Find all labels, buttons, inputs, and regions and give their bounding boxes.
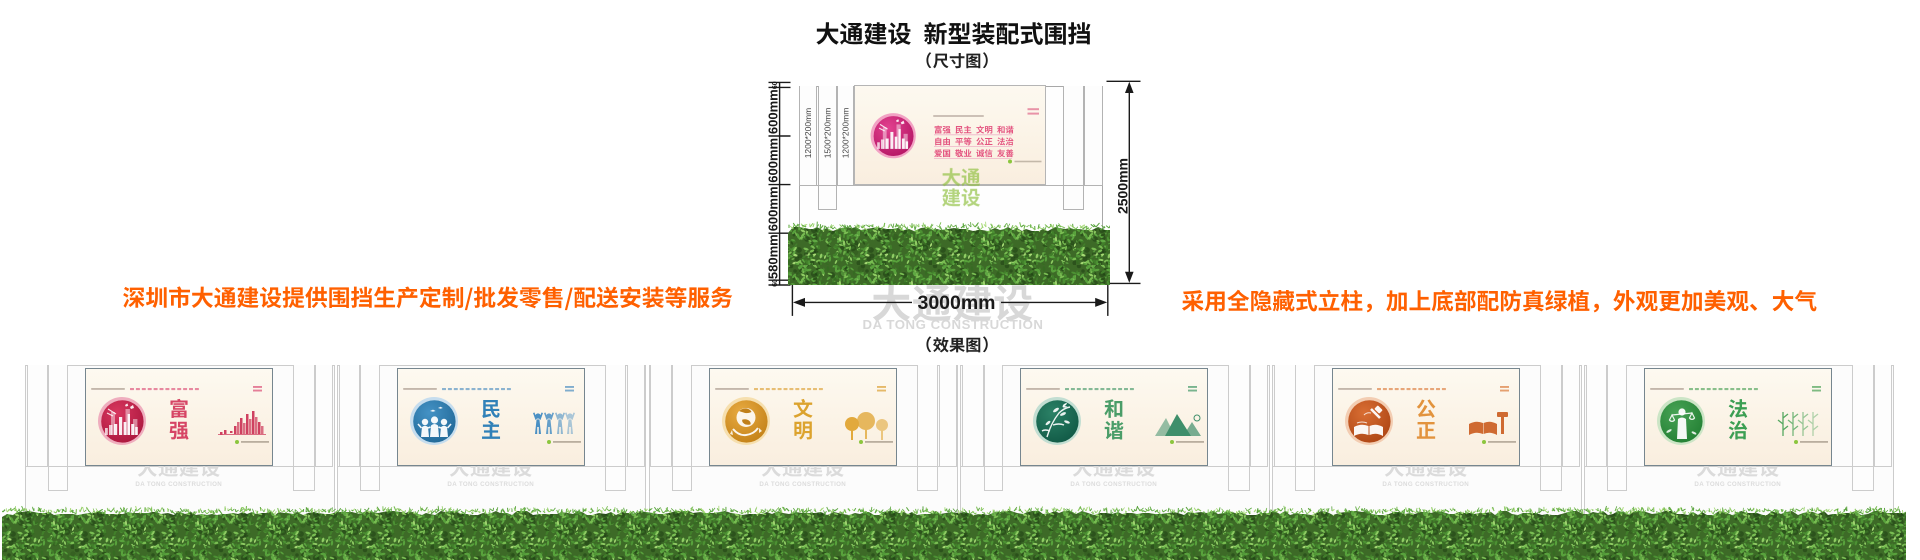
svg-text:DA TONG CONSTRUCTION: DA TONG CONSTRUCTION (135, 481, 222, 488)
svg-text:600mm: 600mm (766, 138, 781, 183)
svg-text:600mm: 600mm (766, 186, 781, 231)
svg-text:60: 60 (772, 81, 779, 89)
svg-text:600mm: 600mm (766, 89, 781, 134)
svg-text:2500mm: 2500mm (1115, 158, 1131, 214)
svg-text:DA TONG CONSTRUCTION: DA TONG CONSTRUCTION (759, 481, 846, 488)
svg-text:1200*200mm: 1200*200mm (803, 108, 813, 159)
svg-text:DA TONG CONSTRUCTION: DA TONG CONSTRUCTION (447, 481, 534, 488)
svg-text:1500*200mm: 1500*200mm (822, 108, 832, 159)
svg-text:1200*200mm: 1200*200mm (840, 108, 850, 159)
svg-text:DA TONG CONSTRUCTION: DA TONG CONSTRUCTION (1071, 481, 1158, 488)
svg-text:DA TONG CONSTRUCTION: DA TONG CONSTRUCTION (1694, 481, 1781, 488)
svg-text:DA TONG CONSTRUCTION: DA TONG CONSTRUCTION (1383, 481, 1470, 488)
